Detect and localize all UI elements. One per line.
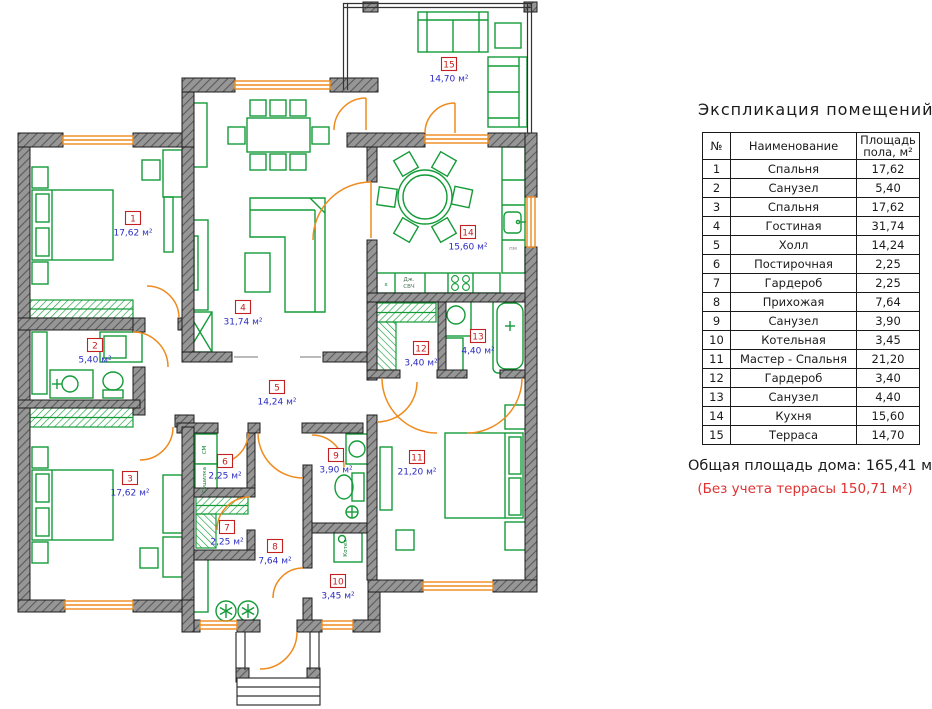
spotlight-icon bbox=[238, 601, 258, 621]
floor-plan: 117,62 м²25,40 м²317,62 м²431,74 м²514,2… bbox=[0, 0, 660, 709]
explication-table: № Наименование Площадь пола, м² 1Спальня… bbox=[702, 132, 920, 445]
row-number: 12 bbox=[703, 369, 731, 388]
room-number: 12 bbox=[415, 345, 426, 355]
room-area: 2,25 bbox=[857, 274, 920, 293]
room-number: 6 bbox=[222, 458, 228, 468]
room-number: 3 bbox=[127, 475, 133, 485]
room-area: 31,74 bbox=[857, 217, 920, 236]
room-name: Санузел bbox=[731, 179, 857, 198]
room-area: 17,62 м² bbox=[110, 489, 149, 499]
kitchen-column bbox=[502, 147, 525, 273]
room-area: 4,40 м² bbox=[461, 347, 495, 357]
room-name: Санузел bbox=[731, 388, 857, 407]
room-number: 1 bbox=[130, 215, 136, 225]
room-label: 1514,70 м² bbox=[429, 58, 468, 85]
washbasin-icon bbox=[62, 376, 78, 392]
explication-panel: Экспликация помещений № Наименование Пло… bbox=[688, 100, 922, 497]
room-name: Санузел bbox=[731, 312, 857, 331]
window-icon bbox=[65, 601, 133, 609]
room-name: Кухня bbox=[731, 407, 857, 426]
room-area: 14,70 м² bbox=[429, 75, 468, 85]
room-area: 14,24 м² bbox=[257, 398, 296, 408]
room-label: 117,62 м² bbox=[113, 212, 152, 239]
plan-annotation: СМ bbox=[202, 445, 208, 454]
room-area: 3,40 bbox=[857, 369, 920, 388]
dining-table bbox=[247, 118, 310, 152]
room-area: 15,60 м² bbox=[448, 243, 487, 253]
table-header-row: № Наименование Площадь пола, м² bbox=[703, 133, 920, 160]
row-number: 10 bbox=[703, 331, 731, 350]
room-area: 3,90 bbox=[857, 312, 920, 331]
room-number: 2 bbox=[92, 342, 98, 352]
room-number: 13 bbox=[472, 333, 483, 343]
window-icon bbox=[527, 197, 535, 247]
window-icon bbox=[425, 135, 488, 143]
room-name: Гостиная bbox=[731, 217, 857, 236]
room-label: 25,40 м² bbox=[78, 339, 112, 366]
row-number: 1 bbox=[703, 160, 731, 179]
kitchen-furniture bbox=[377, 147, 526, 293]
room-name: Постирочная bbox=[731, 255, 857, 274]
bed bbox=[32, 470, 113, 540]
room-number: 5 bbox=[274, 384, 280, 394]
table-row: 10Котельная3,45 bbox=[703, 331, 920, 350]
room-label: 317,62 м² bbox=[110, 472, 149, 499]
room-area: 3,45 bbox=[857, 331, 920, 350]
plan-annotation: Дж. bbox=[404, 277, 415, 283]
table-row: 2Санузел5,40 bbox=[703, 179, 920, 198]
row-number: 4 bbox=[703, 217, 731, 236]
room-area: 31,74 м² bbox=[223, 318, 262, 328]
room-area: 14,70 bbox=[857, 426, 920, 445]
column-header-number: № bbox=[703, 133, 731, 160]
row-number: 6 bbox=[703, 255, 731, 274]
row-number: 5 bbox=[703, 236, 731, 255]
room-name: Гардероб bbox=[731, 369, 857, 388]
table-row: 7Гардероб2,25 bbox=[703, 274, 920, 293]
table-row: 3Спальня17,62 bbox=[703, 198, 920, 217]
window-icon bbox=[200, 621, 237, 629]
room-number: 15 bbox=[443, 61, 454, 71]
room-number: 8 bbox=[272, 543, 278, 553]
room-label: 93,90 м² bbox=[319, 449, 353, 476]
corner-sofa bbox=[250, 198, 325, 312]
room-name: Терраса bbox=[731, 426, 857, 445]
master-bedroom-furniture bbox=[380, 405, 530, 550]
room-name: Спальня bbox=[731, 198, 857, 217]
room-area: 7,64 bbox=[857, 293, 920, 312]
room-area: 5,40 м² bbox=[78, 356, 112, 366]
room-name: Холл bbox=[731, 236, 857, 255]
row-number: 13 bbox=[703, 388, 731, 407]
table-row: 1Спальня17,62 bbox=[703, 160, 920, 179]
room-label: 514,24 м² bbox=[257, 381, 296, 408]
row-number: 7 bbox=[703, 274, 731, 293]
bedroom3-furniture bbox=[32, 447, 182, 577]
room-number: 11 bbox=[411, 454, 422, 464]
room-area: 3,40 м² bbox=[404, 359, 438, 369]
window-icon bbox=[63, 136, 133, 144]
room-area: 17,62 bbox=[857, 198, 920, 217]
terrace-note: (Без учета террасы 150,71 м²) bbox=[688, 481, 922, 497]
plan-annotation: СВЧ bbox=[403, 284, 415, 290]
window-icon bbox=[423, 582, 493, 590]
terrace-furniture bbox=[418, 12, 527, 127]
table-row: 14Кухня15,60 bbox=[703, 407, 920, 426]
room-area: 17,62 м² bbox=[113, 229, 152, 239]
row-number: 2 bbox=[703, 179, 731, 198]
plan-annotation: Котел bbox=[343, 539, 349, 557]
room-area: 4,40 bbox=[857, 388, 920, 407]
table-row: 11Мастер - Спальня21,20 bbox=[703, 350, 920, 369]
room-number: 14 bbox=[462, 229, 474, 239]
room-label: 103,45 м² bbox=[321, 575, 355, 602]
bathtub-icon bbox=[493, 299, 527, 373]
room-name: Спальня bbox=[731, 160, 857, 179]
room-area: 2,25 м² bbox=[208, 472, 242, 482]
porch-steps bbox=[237, 678, 320, 705]
column-header-name: Наименование bbox=[731, 133, 857, 160]
room-name: Прихожая bbox=[731, 293, 857, 312]
row-number: 15 bbox=[703, 426, 731, 445]
explication-table-body: 1Спальня17,622Санузел5,403Спальня17,624Г… bbox=[703, 160, 920, 445]
room-number: 7 bbox=[224, 524, 230, 534]
table-row: 12Гардероб3,40 bbox=[703, 369, 920, 388]
window-icon bbox=[322, 621, 353, 629]
plan-annotation: пм bbox=[509, 246, 517, 252]
living-room-furniture bbox=[188, 100, 329, 352]
room-area: 2,25 м² bbox=[210, 538, 244, 548]
room-area: 15,60 bbox=[857, 407, 920, 426]
spotlight-icon bbox=[216, 601, 236, 621]
table-row: 8Прихожая7,64 bbox=[703, 293, 920, 312]
room-area: 3,90 м² bbox=[319, 466, 353, 476]
room-label: 134,40 м² bbox=[461, 330, 495, 357]
room-number: 9 bbox=[333, 452, 339, 462]
table-row: 9Санузел3,90 bbox=[703, 312, 920, 331]
room-area: 7,64 м² bbox=[258, 557, 292, 567]
room-number: 4 bbox=[240, 304, 246, 314]
room-label: 431,74 м² bbox=[223, 301, 262, 328]
room-area: 21,20 bbox=[857, 350, 920, 369]
explication-title: Экспликация помещений bbox=[698, 100, 922, 119]
room-label: 123,40 м² bbox=[404, 342, 438, 369]
column-header-area: Площадь пола, м² bbox=[857, 133, 920, 160]
table-row: 15Терраса14,70 bbox=[703, 426, 920, 445]
toilet-icon bbox=[352, 473, 364, 501]
toilet-icon bbox=[103, 372, 123, 390]
room-number: 10 bbox=[332, 578, 344, 588]
room-name: Котельная bbox=[731, 331, 857, 350]
table-row: 6Постирочная2,25 bbox=[703, 255, 920, 274]
room-area: 2,25 bbox=[857, 255, 920, 274]
table-row: 13Санузел4,40 bbox=[703, 388, 920, 407]
floor-plan-sheet: 117,62 м²25,40 м²317,62 м²431,74 м²514,2… bbox=[0, 0, 932, 709]
room-area: 17,62 bbox=[857, 160, 920, 179]
bed bbox=[32, 190, 113, 260]
row-number: 3 bbox=[703, 198, 731, 217]
room-label: 1121,20 м² bbox=[397, 451, 436, 478]
hallway-furniture bbox=[190, 556, 258, 621]
row-number: 9 bbox=[703, 312, 731, 331]
room-area: 14,24 bbox=[857, 236, 920, 255]
bed bbox=[445, 433, 523, 518]
coffee-table bbox=[245, 253, 270, 292]
room-area: 21,20 м² bbox=[397, 468, 436, 478]
room-label: 87,64 м² bbox=[258, 540, 292, 567]
row-number: 14 bbox=[703, 407, 731, 426]
table-row: 5Холл14,24 bbox=[703, 236, 920, 255]
bathroom9-fixtures bbox=[335, 434, 368, 518]
room-area: 5,40 bbox=[857, 179, 920, 198]
bedroom1-furniture bbox=[32, 150, 182, 284]
room-area: 3,45 м² bbox=[321, 592, 355, 602]
room-name: Гардероб bbox=[731, 274, 857, 293]
table-row: 4Гостиная31,74 bbox=[703, 217, 920, 236]
window-icon bbox=[235, 81, 330, 89]
room-name: Мастер - Спальня bbox=[731, 350, 857, 369]
plan-annotation: Сушилка bbox=[202, 467, 208, 493]
row-number: 8 bbox=[703, 293, 731, 312]
row-number: 11 bbox=[703, 350, 731, 369]
total-area-line: Общая площадь дома: 165,41 м² bbox=[688, 458, 922, 474]
